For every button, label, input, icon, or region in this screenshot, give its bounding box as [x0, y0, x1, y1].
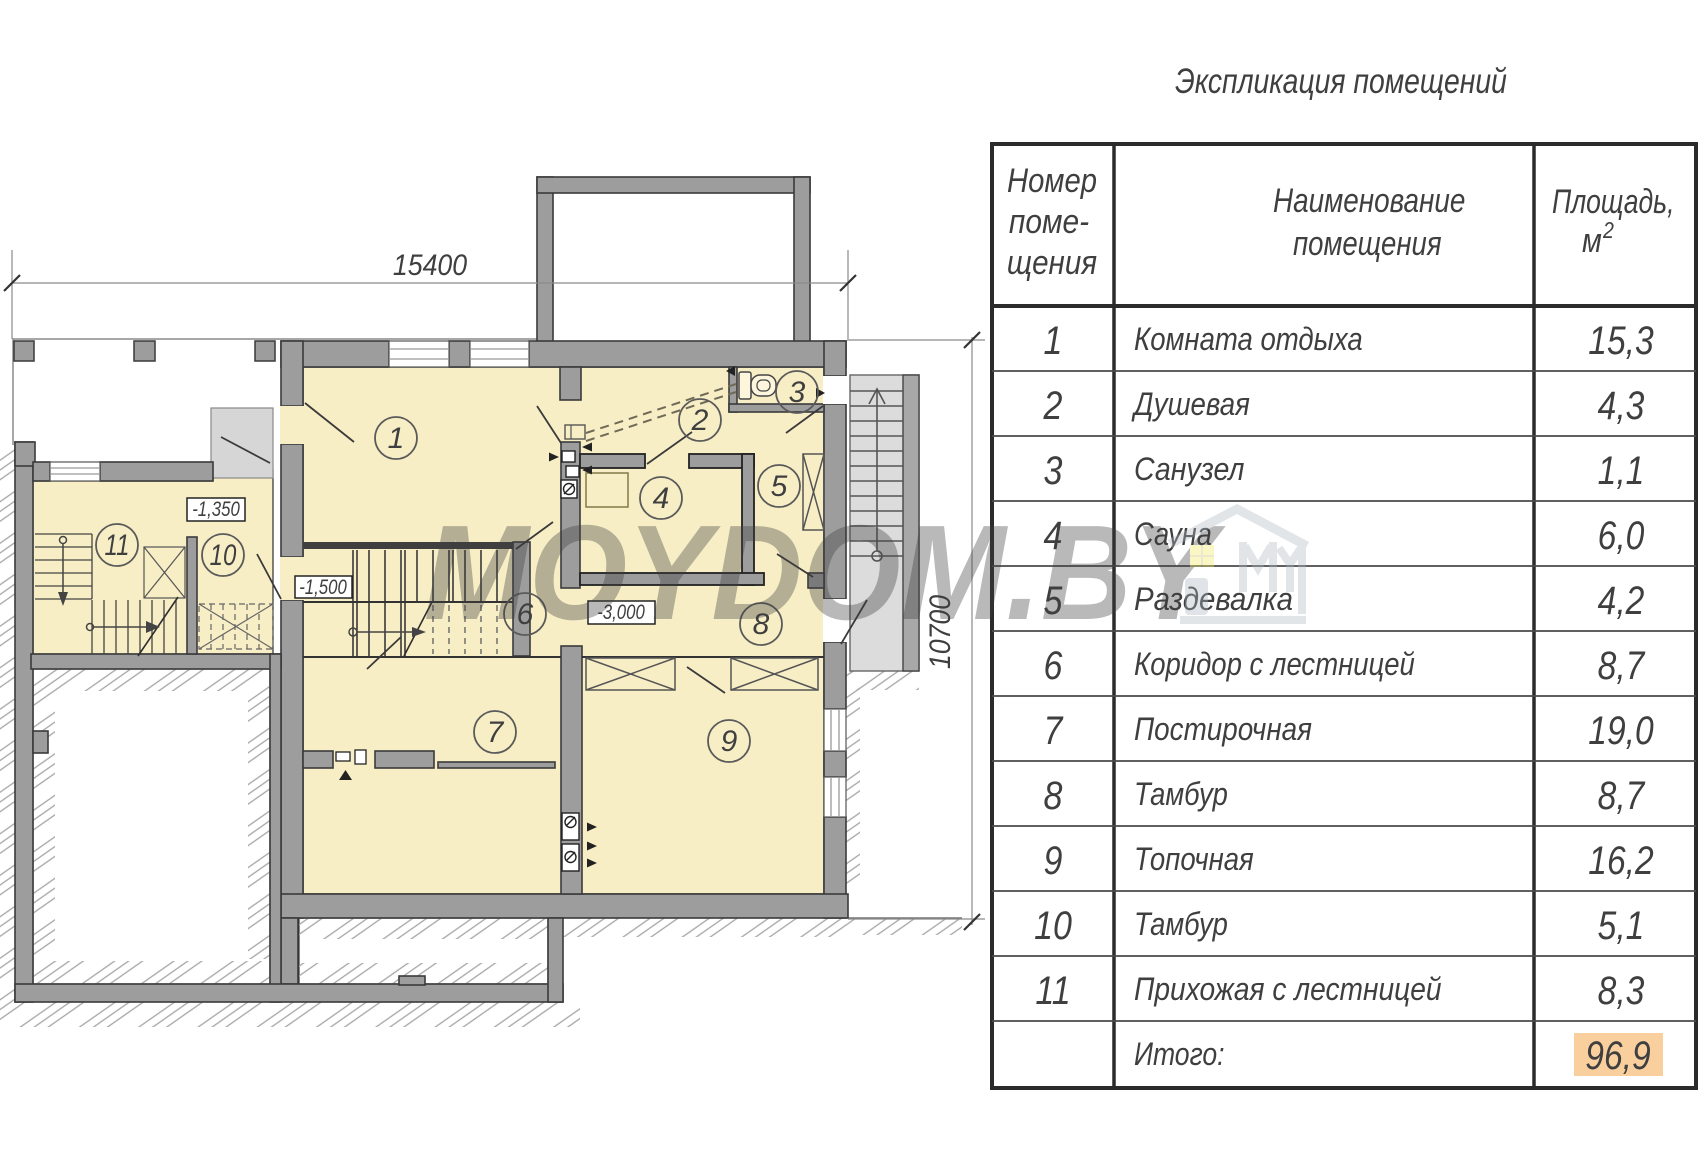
svg-text:3: 3: [1044, 447, 1063, 492]
svg-text:1: 1: [388, 422, 405, 455]
svg-text:9: 9: [1044, 837, 1063, 882]
svg-text:Топочная: Топочная: [1134, 842, 1254, 877]
svg-text:96,9: 96,9: [1585, 1033, 1650, 1077]
svg-text:11: 11: [1035, 967, 1070, 1012]
svg-text:16,2: 16,2: [1588, 838, 1653, 882]
svg-text:7: 7: [487, 716, 505, 749]
svg-text:10: 10: [1034, 902, 1072, 947]
svg-text:8,7: 8,7: [1598, 773, 1646, 817]
svg-text:м: м: [1582, 221, 1602, 260]
svg-text:8,7: 8,7: [1598, 643, 1646, 687]
svg-text:Наименование: Наименование: [1273, 181, 1465, 219]
svg-text:-1,350: -1,350: [192, 498, 240, 521]
svg-text:помещения: помещения: [1293, 224, 1442, 262]
svg-text:Тамбур: Тамбур: [1134, 907, 1228, 942]
svg-text:1,1: 1,1: [1598, 448, 1645, 492]
svg-text:8,3: 8,3: [1598, 968, 1645, 1012]
svg-text:Постирочная: Постирочная: [1134, 712, 1312, 747]
svg-text:2: 2: [1043, 382, 1063, 427]
svg-text:9: 9: [721, 725, 738, 758]
svg-text:щения: щения: [1007, 243, 1097, 281]
svg-text:Душевая: Душевая: [1131, 387, 1250, 422]
svg-text:Итого:: Итого:: [1134, 1037, 1225, 1073]
svg-text:8: 8: [1044, 772, 1063, 817]
svg-text:5,1: 5,1: [1598, 903, 1645, 947]
svg-text:10: 10: [210, 537, 237, 571]
svg-text:6: 6: [1044, 642, 1063, 687]
svg-text:4,3: 4,3: [1598, 383, 1645, 427]
svg-text:Комната отдыха: Комната отдыха: [1134, 322, 1363, 357]
svg-text:Номер: Номер: [1007, 161, 1097, 200]
svg-text:6,0: 6,0: [1598, 513, 1645, 557]
svg-text:-1,500: -1,500: [299, 576, 347, 599]
svg-text:2: 2: [691, 404, 709, 437]
svg-text:Экспликация помещений: Экспликация помещений: [1175, 61, 1507, 101]
svg-text:Санузел: Санузел: [1134, 453, 1244, 488]
svg-text:7: 7: [1044, 707, 1064, 752]
svg-text:19,0: 19,0: [1588, 708, 1654, 752]
svg-text:1: 1: [1044, 317, 1063, 362]
svg-text:Тамбур: Тамбур: [1134, 777, 1228, 812]
svg-text:4,2: 4,2: [1598, 578, 1645, 622]
svg-text:3: 3: [789, 376, 806, 409]
svg-text:15,3: 15,3: [1588, 318, 1654, 362]
svg-text:MOYDOM.BY: MOYDOM.BY: [424, 497, 1226, 648]
svg-text:15400: 15400: [393, 249, 467, 283]
svg-text:Площадь,: Площадь,: [1552, 183, 1674, 221]
svg-text:11: 11: [105, 527, 130, 561]
svg-text:Коридор с лестницей: Коридор с лестницей: [1134, 647, 1415, 682]
svg-text:Прихожая с лестницей: Прихожая с лестницей: [1134, 972, 1442, 1007]
svg-text:поме-: поме-: [1009, 202, 1089, 240]
svg-text:2: 2: [1602, 218, 1614, 244]
